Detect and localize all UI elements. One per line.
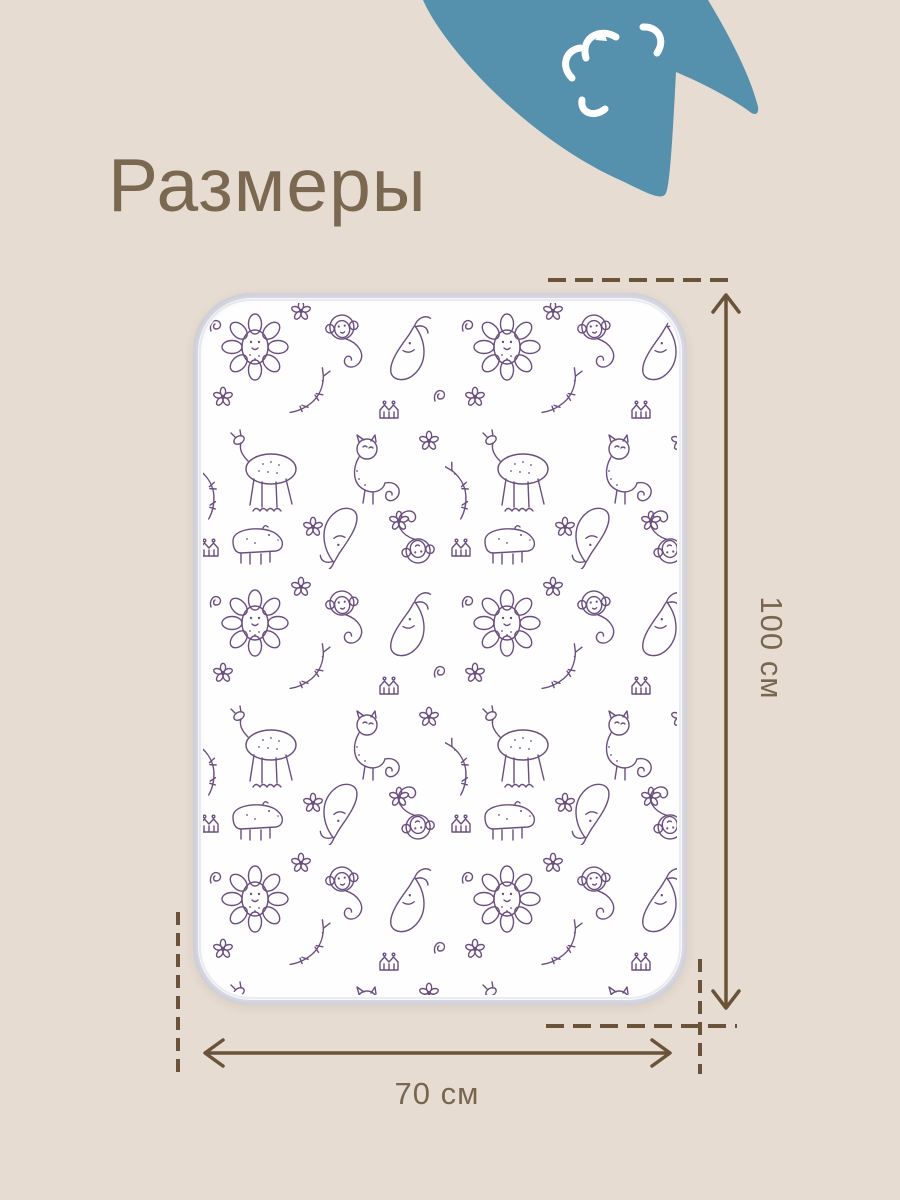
height-dimension-label: 100 см [753,596,789,699]
page-title: Размеры [108,148,427,223]
width-dimension-arrow [205,1040,670,1066]
cat-silhouette-icon [420,0,770,215]
height-dimension-arrow [713,295,739,1008]
changing-mat-image [193,293,687,1005]
mat-pattern-svg [193,293,687,1005]
mat-print [203,303,677,995]
cat-silhouette-shape [423,0,758,196]
product-size-infographic: Размеры [0,0,900,1200]
width-dimension-label: 70 см [395,1076,480,1112]
